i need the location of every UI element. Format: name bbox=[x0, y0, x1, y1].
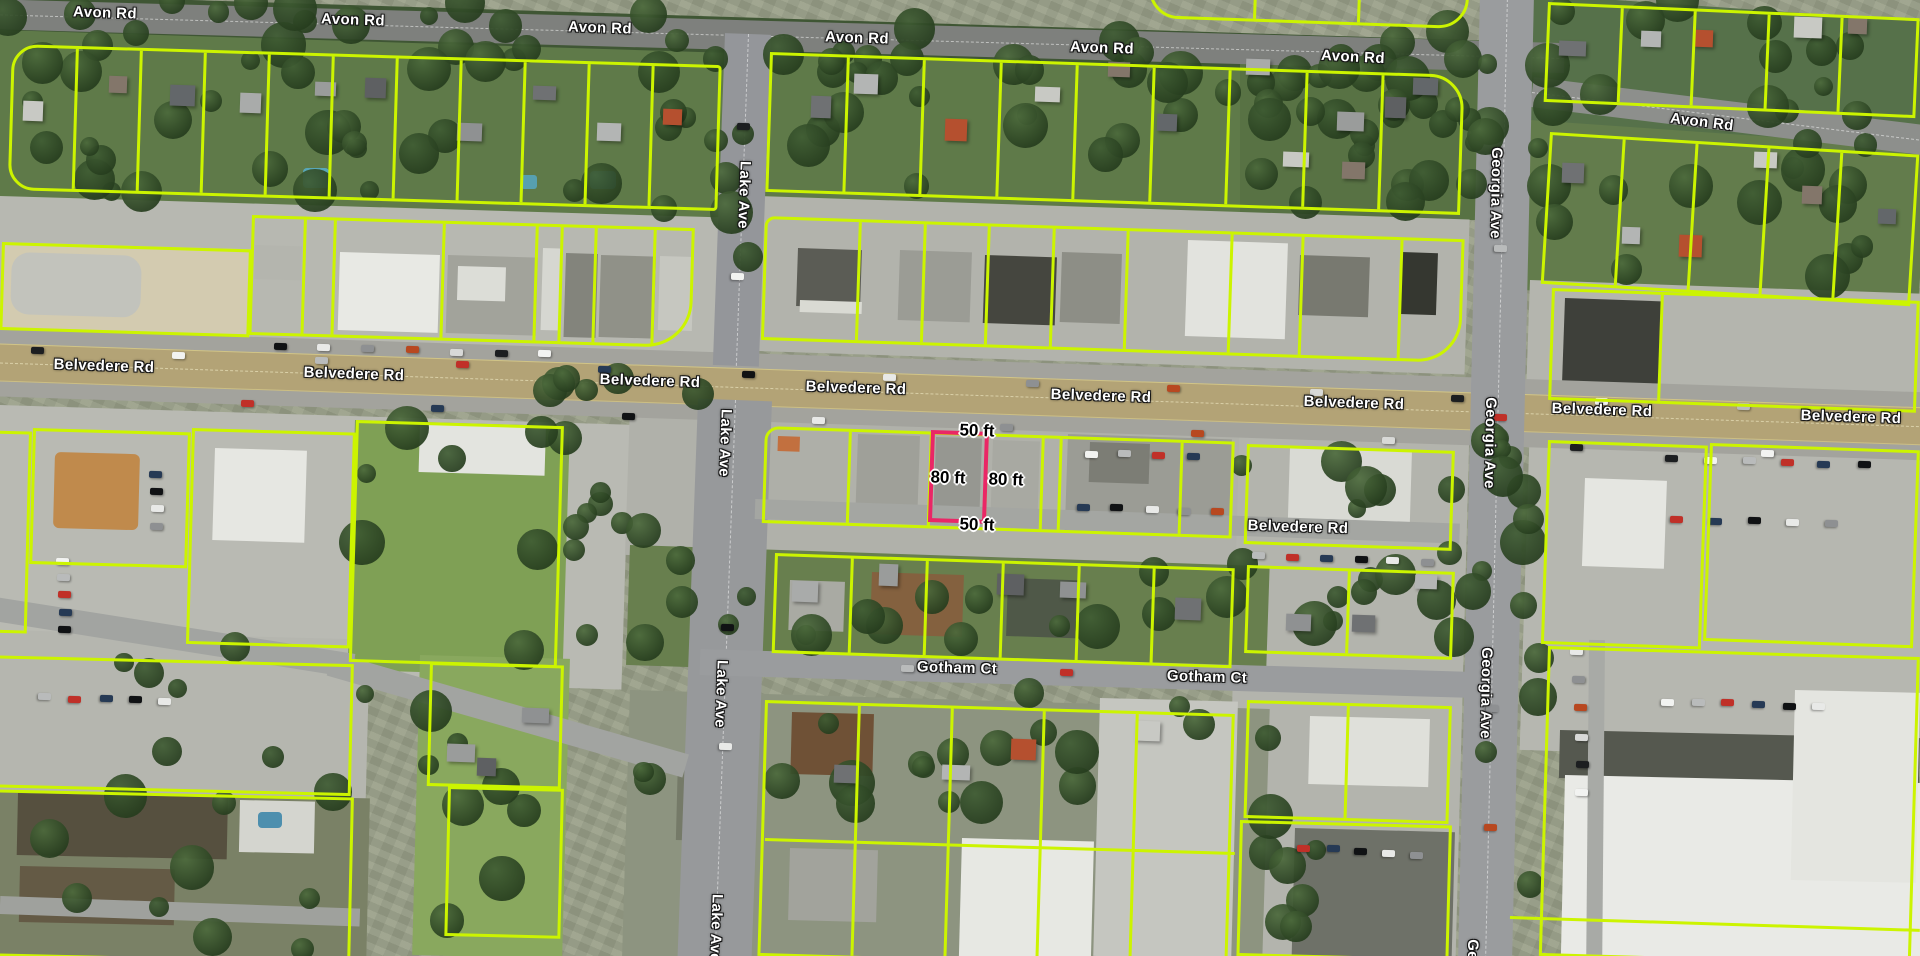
parcel-cell[interactable] bbox=[764, 219, 862, 340]
map-screenshot: 50 ft80 ft80 ft50 ftAvon RdAvon RdAvon R… bbox=[0, 0, 1920, 956]
street-label-georgia: Georgia Ave bbox=[1487, 147, 1506, 239]
parcel-outline[interactable] bbox=[0, 655, 354, 796]
parcel-outline[interactable] bbox=[29, 428, 191, 568]
parcel-outline[interactable] bbox=[427, 662, 564, 789]
parcel-cell[interactable] bbox=[11, 47, 79, 189]
parcel-cell[interactable] bbox=[1059, 439, 1184, 534]
car bbox=[315, 356, 328, 363]
parcel-cell[interactable] bbox=[987, 226, 1055, 346]
car bbox=[31, 347, 44, 354]
parcel-outline[interactable] bbox=[0, 789, 354, 956]
street-label-gotham: Gotham Ct bbox=[917, 658, 998, 677]
street-label-georgia: Georgia Ave bbox=[1477, 647, 1496, 739]
map-canvas[interactable]: 50 ft80 ft80 ft50 ftAvon RdAvon RdAvon R… bbox=[0, 0, 1920, 956]
tree-canopy bbox=[1444, 40, 1482, 78]
car bbox=[456, 361, 469, 368]
parcel-outline[interactable] bbox=[757, 700, 1234, 956]
parcel-cell[interactable] bbox=[1766, 15, 1843, 112]
street-label-georgia: Georgia Ave bbox=[1481, 397, 1500, 489]
tree-canopy bbox=[1528, 138, 1548, 158]
car bbox=[316, 344, 329, 351]
parcel-cell[interactable] bbox=[560, 227, 598, 342]
parcel-cell[interactable] bbox=[1617, 140, 1699, 290]
parcel-cell[interactable] bbox=[252, 218, 308, 334]
parcel-cell[interactable] bbox=[1380, 75, 1461, 211]
parcel-outline[interactable] bbox=[349, 420, 564, 668]
parcel-cell[interactable] bbox=[1227, 70, 1308, 206]
tree-canopy bbox=[633, 762, 653, 782]
parcel-cell[interactable] bbox=[1151, 68, 1232, 204]
tree-canopy bbox=[1455, 573, 1491, 609]
parcel-cell[interactable] bbox=[1240, 823, 1449, 956]
parcel-outline[interactable] bbox=[1548, 288, 1920, 413]
parcel-cell[interactable] bbox=[853, 706, 953, 956]
tree-canopy bbox=[626, 624, 664, 662]
parcel-outline[interactable] bbox=[772, 553, 1235, 668]
car bbox=[405, 345, 418, 352]
car bbox=[901, 665, 914, 672]
car bbox=[450, 348, 463, 355]
dimension-label: 50 ft bbox=[959, 420, 995, 441]
parcel-outline[interactable] bbox=[248, 215, 694, 348]
tree-canopy bbox=[563, 539, 585, 561]
parcel-cell[interactable] bbox=[587, 64, 655, 206]
car bbox=[731, 273, 744, 280]
parcel-cell[interactable] bbox=[2, 245, 248, 334]
parcel-cell[interactable] bbox=[650, 66, 718, 208]
tree-canopy bbox=[737, 587, 756, 606]
street-label-belvedere: Belvedere Rd bbox=[1247, 517, 1348, 537]
car bbox=[59, 609, 72, 616]
street-label-lake: Lake Ave bbox=[734, 161, 753, 230]
tree-canopy bbox=[420, 7, 438, 25]
car bbox=[1382, 437, 1395, 444]
tree-canopy bbox=[666, 546, 695, 575]
street-label-georgia: Georgia Ave bbox=[1463, 939, 1482, 956]
street-label-belvedere: Belvedere Rd bbox=[805, 378, 906, 398]
car bbox=[1320, 554, 1333, 561]
street-label-belvedere: Belvedere Rd bbox=[1800, 407, 1901, 427]
street-label-avon: Avon Rd bbox=[568, 18, 632, 37]
street-label-belvedere: Belvedere Rd bbox=[303, 364, 404, 384]
parcel-cell[interactable] bbox=[0, 433, 29, 630]
parcel-cell[interactable] bbox=[334, 221, 446, 338]
street-label-belvedere: Belvedere Rd bbox=[1050, 386, 1151, 406]
parcel-outline[interactable] bbox=[0, 430, 32, 634]
car bbox=[361, 344, 374, 351]
tree-canopy bbox=[626, 513, 661, 548]
parcel-cell[interactable] bbox=[304, 220, 337, 335]
car bbox=[812, 417, 825, 424]
car bbox=[1386, 557, 1399, 564]
parcel-cell[interactable] bbox=[1689, 144, 1771, 294]
parcel-cell[interactable] bbox=[1074, 65, 1155, 201]
parcel-cell[interactable] bbox=[442, 224, 539, 341]
tree-canopy bbox=[1510, 592, 1537, 619]
parcel-cell[interactable] bbox=[1547, 5, 1624, 102]
parcel-cell[interactable] bbox=[1544, 443, 1705, 646]
parcel-cell[interactable] bbox=[845, 58, 926, 194]
parcel-cell[interactable] bbox=[1400, 240, 1461, 360]
street-label-avon: Avon Rd bbox=[1070, 38, 1134, 57]
parcel-cell[interactable] bbox=[760, 703, 860, 956]
street-label-lake: Lake Ave bbox=[711, 660, 730, 729]
parcel-cell[interactable] bbox=[1247, 703, 1350, 818]
parcel-cell[interactable] bbox=[139, 51, 207, 193]
car bbox=[1354, 556, 1367, 563]
parcel-outline[interactable] bbox=[765, 52, 1464, 215]
tree-canopy bbox=[356, 685, 374, 703]
parcel-cell[interactable] bbox=[858, 222, 926, 342]
street-label-avon: Avon Rd bbox=[321, 10, 385, 29]
parcel-cell[interactable] bbox=[594, 228, 656, 344]
street-label-lake: Lake Ave bbox=[715, 409, 734, 478]
car bbox=[1252, 552, 1265, 559]
car bbox=[58, 625, 71, 632]
car bbox=[1286, 554, 1299, 561]
tree-canopy bbox=[553, 365, 580, 392]
parcel-cell[interactable] bbox=[1052, 229, 1130, 349]
parcel-cell[interactable] bbox=[850, 559, 929, 655]
parcel-cell[interactable] bbox=[447, 789, 560, 936]
parcel-cell[interactable] bbox=[1348, 571, 1452, 656]
parcel-cell[interactable] bbox=[1542, 649, 1917, 956]
car bbox=[57, 574, 70, 581]
tree-canopy bbox=[1478, 54, 1498, 74]
street-label-gotham: Gotham Ct bbox=[1167, 667, 1248, 686]
parcel-cell[interactable] bbox=[1126, 231, 1234, 352]
parcel-cell[interactable] bbox=[1304, 73, 1385, 209]
parcel-outline[interactable] bbox=[1541, 132, 1920, 306]
car bbox=[1000, 424, 1013, 431]
street-label-belvedere: Belvedere Rd bbox=[1303, 393, 1404, 413]
parcel-cell[interactable] bbox=[1301, 237, 1404, 358]
parcel-cell[interactable] bbox=[1693, 12, 1770, 109]
parcel-cell[interactable] bbox=[768, 55, 849, 191]
parcel-cell[interactable] bbox=[1153, 569, 1232, 665]
car bbox=[1026, 380, 1039, 387]
car bbox=[1421, 558, 1434, 565]
parcel-cell[interactable] bbox=[1256, 0, 1362, 22]
parcel-outline[interactable] bbox=[1244, 444, 1455, 551]
parcel-cell[interactable] bbox=[921, 60, 1002, 196]
parcel-cell[interactable] bbox=[395, 58, 463, 200]
parcel-cell[interactable] bbox=[1002, 564, 1081, 660]
tree-canopy bbox=[208, 1, 230, 23]
street-label-avon: Avon Rd bbox=[73, 3, 137, 22]
street-label-belvedere: Belvedere Rd bbox=[1551, 400, 1652, 420]
parcel-outline[interactable] bbox=[1703, 443, 1920, 648]
parcel-cell[interactable] bbox=[1247, 568, 1351, 653]
parcel-cell[interactable] bbox=[1620, 8, 1697, 105]
car bbox=[1484, 824, 1497, 831]
parcel-cell[interactable] bbox=[1077, 566, 1156, 662]
parcel-cell[interactable] bbox=[1835, 153, 1917, 303]
parcel-cell[interactable] bbox=[535, 227, 563, 342]
parcel-cell[interactable] bbox=[1762, 149, 1844, 299]
parcel-cell[interactable] bbox=[765, 429, 852, 523]
parcel-outline[interactable] bbox=[1244, 565, 1455, 660]
parcel-cell[interactable] bbox=[1230, 235, 1305, 355]
parcel-cell[interactable] bbox=[331, 57, 399, 199]
parcel-outline[interactable] bbox=[1544, 2, 1920, 118]
parcel-cell[interactable] bbox=[849, 432, 933, 526]
parcel-outline[interactable] bbox=[1148, 0, 1470, 29]
parcel-cell[interactable] bbox=[1181, 443, 1232, 536]
parcel-cell[interactable] bbox=[0, 792, 351, 956]
parcel-cell[interactable] bbox=[203, 53, 271, 195]
parcel-cell[interactable] bbox=[653, 230, 691, 345]
parcel-cell[interactable] bbox=[1151, 0, 1257, 19]
parcel-outline[interactable] bbox=[1539, 646, 1920, 956]
parcel-cell[interactable] bbox=[32, 431, 188, 565]
dimension-label: 80 ft bbox=[930, 467, 966, 488]
parcel-cell[interactable] bbox=[1706, 446, 1917, 645]
tree-canopy bbox=[1517, 871, 1543, 897]
car bbox=[1167, 385, 1180, 392]
parcel-outline[interactable] bbox=[1236, 820, 1451, 956]
parcel-cell[interactable] bbox=[946, 709, 1046, 956]
tree-canopy bbox=[665, 29, 688, 52]
parcel-outline[interactable] bbox=[186, 428, 356, 648]
parcel-cell[interactable] bbox=[189, 431, 353, 645]
dimension-label: 50 ft bbox=[959, 514, 995, 535]
parcel-cell[interactable] bbox=[998, 63, 1079, 199]
parcel-cell[interactable] bbox=[523, 62, 591, 204]
car bbox=[538, 350, 551, 357]
parcel-outline[interactable] bbox=[8, 44, 722, 211]
parcel-cell[interactable] bbox=[1132, 714, 1232, 956]
car bbox=[721, 624, 734, 631]
parcel-cell[interactable] bbox=[775, 556, 854, 652]
tree-canopy bbox=[1014, 678, 1044, 708]
tree-canopy bbox=[563, 514, 589, 540]
tree-canopy bbox=[576, 624, 598, 646]
parcel-cell[interactable] bbox=[267, 55, 335, 197]
parcel-cell[interactable] bbox=[1544, 135, 1626, 285]
car bbox=[1494, 245, 1507, 252]
car bbox=[737, 123, 750, 130]
parcel-cell[interactable] bbox=[1551, 291, 1663, 401]
street-label-belvedere: Belvedere Rd bbox=[599, 371, 700, 391]
parcel-cell[interactable] bbox=[923, 224, 991, 344]
car bbox=[742, 371, 755, 378]
car bbox=[241, 400, 254, 407]
parcel-cell[interactable] bbox=[430, 665, 561, 786]
car bbox=[431, 405, 444, 412]
parcel-cell[interactable] bbox=[0, 658, 351, 793]
street-label-avon: Avon Rd bbox=[1321, 47, 1386, 67]
parcel-cell[interactable] bbox=[926, 561, 1005, 657]
parcel-cell[interactable] bbox=[1660, 295, 1917, 410]
car bbox=[1451, 394, 1464, 401]
parcel-cell[interactable] bbox=[1346, 706, 1449, 821]
car bbox=[1060, 669, 1073, 676]
parcel-cell[interactable] bbox=[459, 60, 527, 202]
car bbox=[274, 342, 287, 349]
parcel-cell[interactable] bbox=[1839, 18, 1916, 115]
street-label-belvedere: Belvedere Rd bbox=[53, 356, 154, 376]
car bbox=[172, 352, 185, 359]
car bbox=[718, 743, 731, 750]
car bbox=[1191, 430, 1204, 437]
parcel-outline[interactable] bbox=[0, 242, 252, 337]
parcel-outline[interactable] bbox=[444, 786, 564, 939]
tree-canopy bbox=[666, 586, 698, 618]
dimension-label: 80 ft bbox=[988, 469, 1024, 490]
car bbox=[58, 591, 71, 598]
street-label-lake: Lake Ave bbox=[706, 894, 725, 956]
parcel-outline[interactable] bbox=[1243, 700, 1451, 824]
car bbox=[622, 412, 635, 419]
parcel-cell[interactable] bbox=[1039, 711, 1139, 956]
parcel-outline[interactable] bbox=[1541, 440, 1708, 649]
parcel-outline[interactable] bbox=[761, 216, 1465, 363]
parcel-cell[interactable] bbox=[352, 423, 561, 665]
parcel-cell[interactable] bbox=[75, 49, 143, 191]
car bbox=[495, 349, 508, 356]
street-label-avon: Avon Rd bbox=[825, 28, 889, 47]
parcel-cell[interactable] bbox=[1360, 0, 1466, 26]
